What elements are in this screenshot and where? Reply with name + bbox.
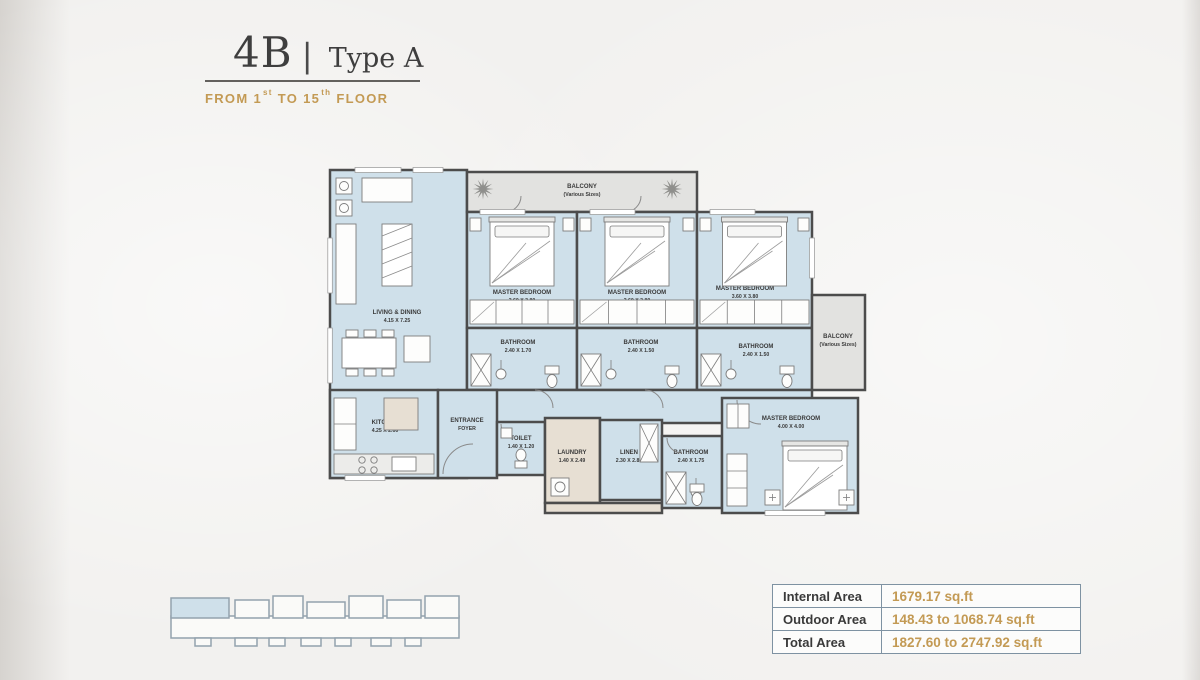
room-label: LINEN <box>620 450 638 456</box>
floor-range: FROM 1st TO 15th FLOOR <box>205 91 423 106</box>
room-dims: 2.30 X 2.89 <box>616 458 643 464</box>
window <box>765 511 825 516</box>
window <box>413 168 443 173</box>
window <box>355 168 401 173</box>
room-label: ENTRANCE <box>450 418 483 424</box>
floor-range-last-sup: th <box>321 88 331 106</box>
area-row-value: 148.43 to 1068.74 sq.ft <box>882 608 1081 631</box>
room-label: MASTER BEDROOM <box>762 416 820 422</box>
room-dims: 2.40 X 1.75 <box>678 458 705 464</box>
key-plan-notch <box>335 638 351 646</box>
area-row-label: Total Area <box>773 631 882 654</box>
room-label: BATHROOM <box>501 340 536 346</box>
unit-type: Type A <box>329 43 424 74</box>
brochure-page: 4B | Type A FROM 1st TO 15th FLOOR LIVIN… <box>0 0 1200 680</box>
room-label: MASTER BEDROOM <box>608 290 666 296</box>
area-row: Outdoor Area148.43 to 1068.74 sq.ft <box>773 608 1081 631</box>
title-separator: | <box>302 36 313 75</box>
room-label: LAUNDRY <box>557 450 586 456</box>
furniture-linen <box>640 424 658 462</box>
window <box>328 238 333 293</box>
key-plan-bump <box>387 600 421 618</box>
key-plan-bump <box>307 602 345 618</box>
key-plan-band <box>171 616 459 638</box>
room-label: MASTER BEDROOM <box>493 290 551 296</box>
room-dims: 2.40 X 1.50 <box>743 352 770 358</box>
window <box>710 210 755 215</box>
page-title: 4B | Type A <box>205 28 423 77</box>
room-service-hall <box>545 503 662 513</box>
floor-range-first: 1 <box>253 91 262 106</box>
window <box>328 328 333 383</box>
floor-plan: LIVING & DINING4.15 X 7.25BALCONY(Variou… <box>325 158 870 526</box>
key-plan-unit-highlight <box>171 598 229 618</box>
key-plan-bump <box>235 600 269 618</box>
room-balcony-top: BALCONY(Various Sizes) <box>467 172 697 212</box>
room-label: BATHROOM <box>739 344 774 350</box>
room-dims: FOYER <box>458 426 476 432</box>
window <box>480 210 525 215</box>
room-dims: (Various Sizes) <box>564 192 601 198</box>
area-row-value: 1827.60 to 2747.92 sq.ft <box>882 631 1081 654</box>
window <box>810 238 815 278</box>
key-plan-bump <box>425 596 459 618</box>
room-dims: 2.40 X 1.50 <box>628 348 655 354</box>
floor-range-from: FROM <box>205 91 248 106</box>
key-plan-notch <box>405 638 421 646</box>
key-plan <box>165 590 465 652</box>
room-dims: 4.00 X 4.00 <box>778 424 805 430</box>
room-dims: 2.40 X 1.70 <box>505 348 532 354</box>
room-dims: 4.15 X 7.25 <box>384 318 411 324</box>
room-dims: 1.40 X 2.49 <box>559 458 586 464</box>
room-label: BALCONY <box>823 334 853 340</box>
title-underline <box>205 80 420 82</box>
key-plan-bump <box>349 596 383 618</box>
area-row-value: 1679.17 sq.ft <box>882 585 1081 608</box>
unit-code: 4B <box>233 28 293 77</box>
area-row-label: Outdoor Area <box>773 608 882 631</box>
room-label: MASTER BEDROOM <box>716 286 774 292</box>
key-plan-notch <box>301 638 321 646</box>
floor-range-last: 15 <box>303 91 320 106</box>
room-balcony-right: BALCONY(Various Sizes) <box>812 295 865 390</box>
area-table: Internal Area1679.17 sq.ftOutdoor Area14… <box>772 584 1081 654</box>
room-dims: (Various Sizes) <box>820 342 857 348</box>
room-label: LIVING & DINING <box>373 310 422 316</box>
room-label: BATHROOM <box>624 340 659 346</box>
room-label: TOILET <box>510 436 532 442</box>
key-plan-notch <box>235 638 257 646</box>
area-row: Total Area1827.60 to 2747.92 sq.ft <box>773 631 1081 654</box>
key-plan-notch <box>371 638 391 646</box>
room-entrance-foyer: ENTRANCEFOYER <box>438 390 497 478</box>
key-plan-notch <box>195 638 211 646</box>
key-plan-bump <box>273 596 303 618</box>
furniture-laundry <box>551 478 569 496</box>
area-row: Internal Area1679.17 sq.ft <box>773 585 1081 608</box>
window <box>345 476 385 481</box>
floor-range-floor: FLOOR <box>336 91 388 106</box>
header: 4B | Type A FROM 1st TO 15th FLOOR <box>205 28 423 106</box>
area-row-label: Internal Area <box>773 585 882 608</box>
key-plan-notch <box>269 638 285 646</box>
room-dims: 3.60 X 3.80 <box>732 294 759 300</box>
floor-range-to: TO <box>278 91 298 106</box>
window <box>590 210 635 215</box>
room-label: BALCONY <box>567 184 597 190</box>
floor-range-first-sup: st <box>263 88 273 106</box>
